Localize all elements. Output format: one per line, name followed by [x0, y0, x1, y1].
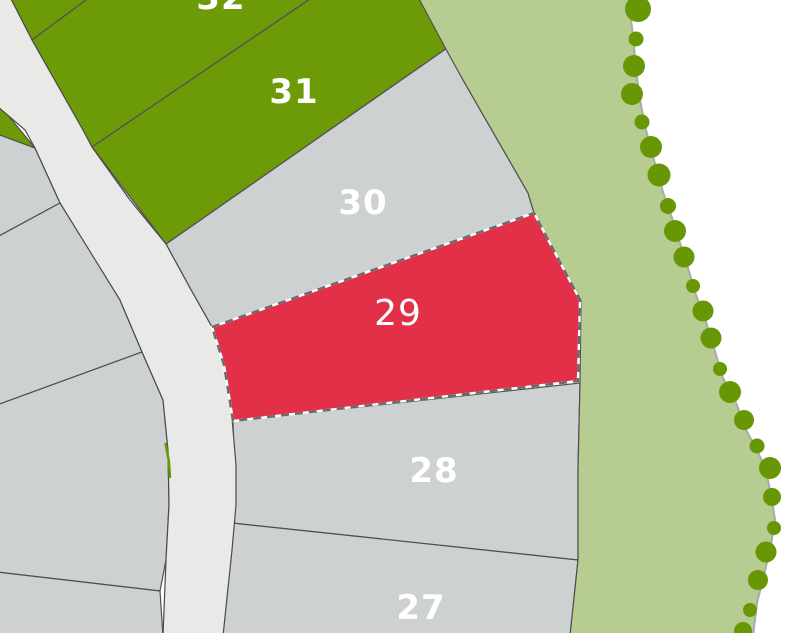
tree-icon	[640, 136, 662, 158]
tree-icon	[763, 488, 781, 506]
tree-icon	[743, 603, 757, 617]
plat-map: 32 31 30 29 28 27	[0, 0, 790, 633]
lot-29-label: 29	[374, 293, 422, 334]
lot-28-label: 28	[409, 451, 458, 491]
tree-icon	[660, 198, 676, 214]
tree-icon	[748, 570, 768, 590]
tree-icon	[664, 220, 686, 242]
lot-32-label: 32	[196, 0, 245, 18]
tree-icon	[734, 410, 754, 430]
tree-icon	[623, 55, 645, 77]
lot-30-label: 30	[338, 183, 387, 223]
tree-icon	[635, 115, 650, 130]
tree-icon	[767, 521, 781, 535]
tree-icon	[674, 247, 695, 268]
lot-31-label: 31	[269, 72, 318, 112]
tree-icon	[756, 542, 777, 563]
tree-icon	[693, 301, 714, 322]
tree-icon	[648, 164, 671, 187]
tree-icon	[759, 457, 781, 479]
tree-icon	[713, 362, 727, 376]
tree-icon	[621, 83, 643, 105]
tree-icon	[686, 279, 700, 293]
plat-map-viewport: 32 31 30 29 28 27	[0, 0, 790, 633]
lot-27-label: 27	[396, 588, 445, 628]
tree-icon	[719, 381, 741, 403]
tree-icon	[629, 32, 644, 47]
tree-icon	[750, 439, 765, 454]
tree-icon	[701, 328, 722, 349]
